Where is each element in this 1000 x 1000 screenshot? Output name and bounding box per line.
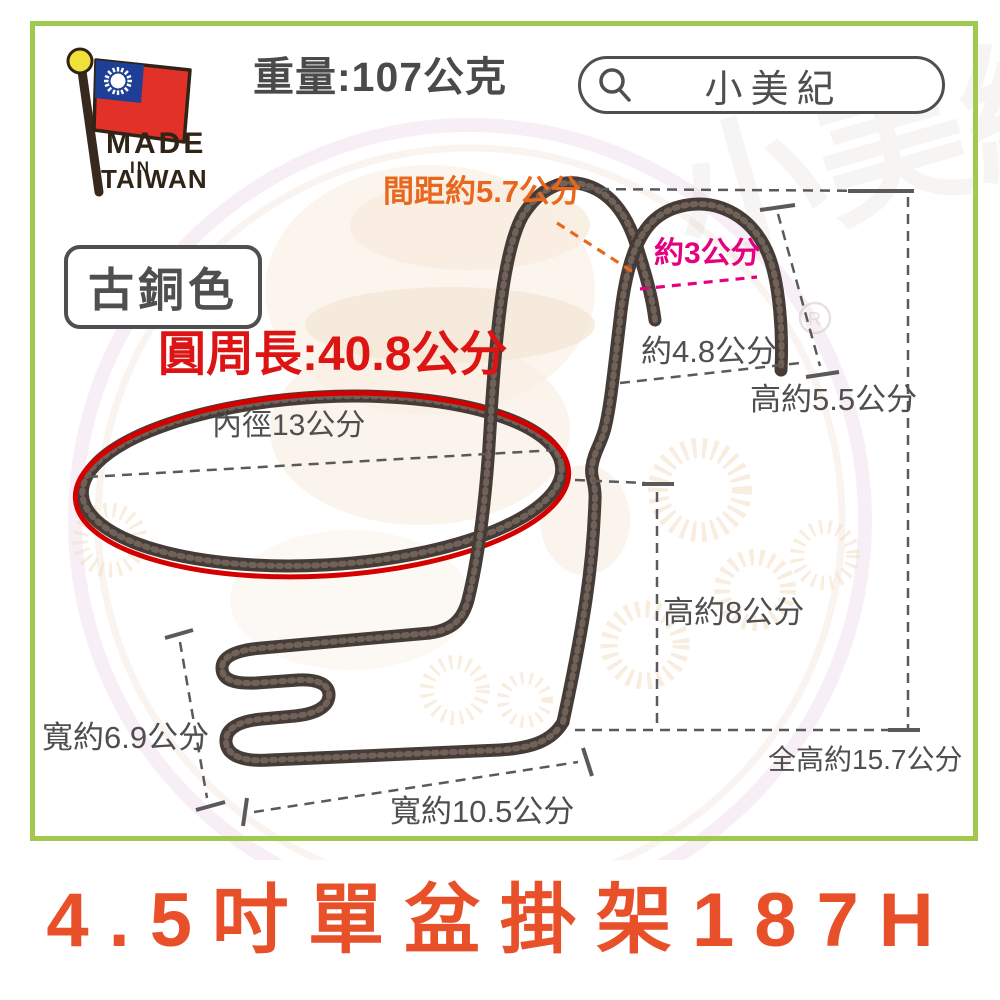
brand-name: 小美紀 [635, 58, 942, 113]
color-badge-label: 古銅色 [88, 254, 238, 320]
circumference-label: 圓周長:40.8公分 [158, 330, 507, 380]
bracket-width-label: 寬約6.9公分 [42, 722, 209, 755]
total-height-label: 全高約15.7公分 [768, 745, 963, 774]
hook-height-label: 高約5.5公分 [750, 384, 917, 417]
hook-spacing-label: 間距約5.7公分 [383, 176, 581, 209]
hook-gap-label: 約3公分 [654, 238, 761, 270]
base-width-label: 寬約10.5公分 [390, 796, 574, 829]
hook-depth-label: 約4.8公分 [641, 336, 777, 369]
weight-label: 重量:107公克 [253, 56, 507, 99]
brand-search-pill: 小美紀 [578, 56, 945, 114]
content-frame [30, 21, 978, 841]
search-icon [595, 65, 635, 105]
inner-diameter-label: 內徑13公分 [212, 410, 365, 442]
body-height-label: 高約8公分 [663, 597, 804, 630]
color-badge: 古銅色 [64, 245, 262, 329]
product-title: 4.5吋單盆掛架187H [0, 858, 1000, 968]
